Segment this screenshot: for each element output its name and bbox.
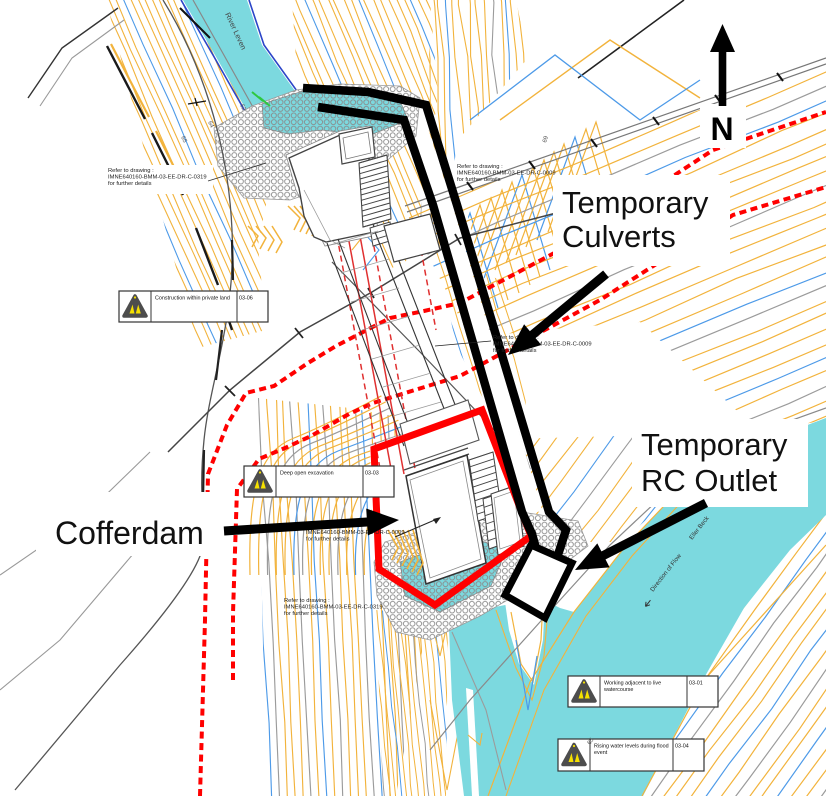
svg-text:watercourse: watercourse: [603, 687, 633, 693]
svg-text:for further details: for further details: [284, 611, 328, 617]
svg-text:Refer to drawing :: Refer to drawing :: [284, 598, 330, 604]
svg-text:Cofferdam: Cofferdam: [55, 515, 204, 551]
svg-text:Refer to drawing :: Refer to drawing :: [457, 164, 503, 170]
svg-text:IMNE640160-BMM-03-EE-DR-C-0319: IMNE640160-BMM-03-EE-DR-C-0319: [284, 605, 383, 611]
svg-text:for further details: for further details: [306, 537, 350, 543]
svg-text:event: event: [594, 750, 608, 756]
svg-text:IMNE640160-BMM-03-EE-DR-C-0319: IMNE640160-BMM-03-EE-DR-C-0319: [108, 175, 207, 181]
svg-text:IMNE640160-BMM-03-EE-DR-C-0009: IMNE640160-BMM-03-EE-DR-C-0009: [306, 530, 405, 536]
svg-text:for further details: for further details: [108, 181, 152, 187]
svg-text:Refer to drawing :: Refer to drawing :: [108, 168, 154, 174]
svg-text:Rising water levels during flo: Rising water levels during flood: [594, 744, 669, 750]
svg-text:Culverts: Culverts: [562, 219, 676, 254]
svg-text:03-01: 03-01: [689, 681, 703, 687]
svg-text:Temporary: Temporary: [641, 427, 788, 462]
svg-text:for further details: for further details: [457, 177, 501, 183]
svg-text:Construction within private la: Construction within private land: [155, 296, 230, 302]
svg-text:03-03: 03-03: [365, 471, 379, 477]
svg-text:03-04: 03-04: [675, 744, 689, 750]
svg-text:Temporary: Temporary: [562, 185, 709, 220]
svg-text:IMNE640160-BMM-03-EE-DR-C-0009: IMNE640160-BMM-03-EE-DR-C-0009: [493, 342, 592, 348]
svg-text:Working adjacent to live: Working adjacent to live: [604, 681, 661, 687]
svg-text:N: N: [710, 111, 733, 147]
svg-text:03-06: 03-06: [239, 296, 253, 302]
svg-text:Deep open excavation: Deep open excavation: [280, 471, 334, 477]
svg-text:IMNE640160-BMM-03-EE-DR-C-0009: IMNE640160-BMM-03-EE-DR-C-0009: [457, 171, 556, 177]
svg-text:RC Outlet: RC Outlet: [641, 463, 777, 498]
